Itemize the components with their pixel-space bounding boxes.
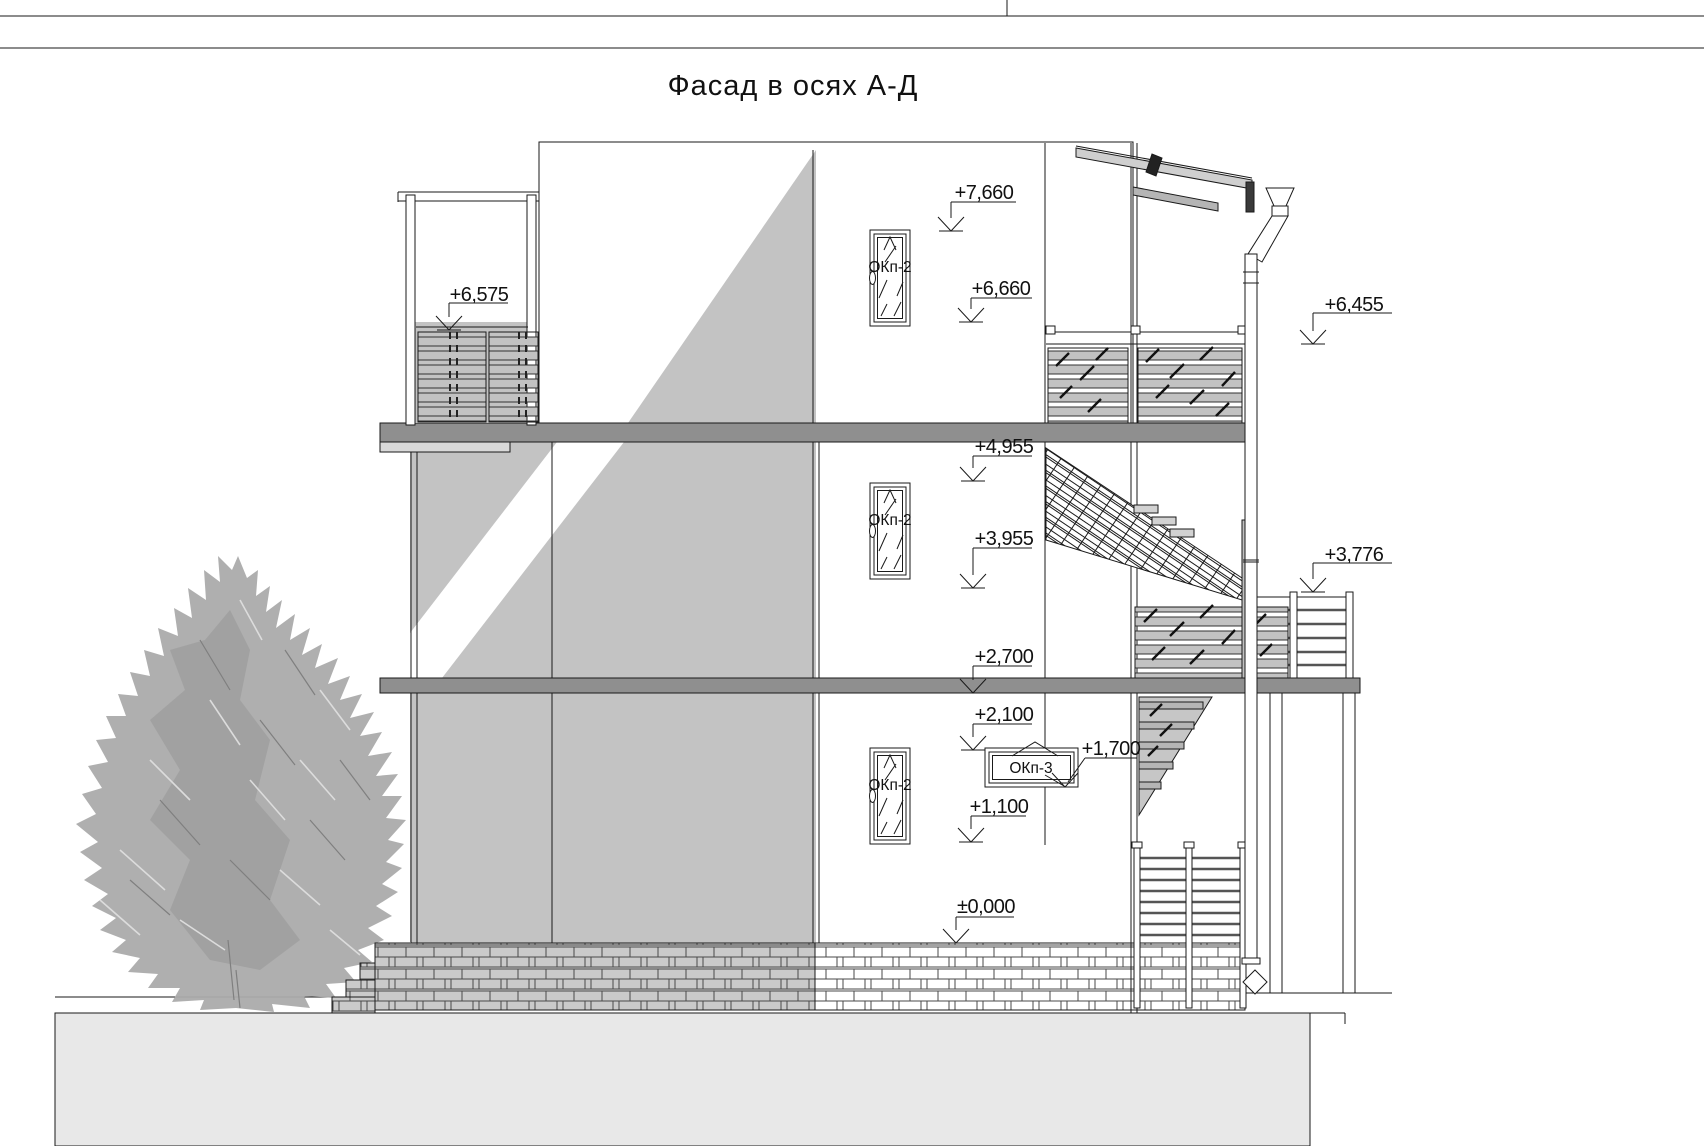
left-balcony (398, 192, 539, 425)
funnel-neck (1272, 206, 1288, 216)
brick-plinth-light (815, 943, 1245, 1010)
marker-arrow (1300, 330, 1326, 344)
entry-step-middle (346, 980, 375, 997)
ground (55, 993, 1392, 1146)
wall-floor3 (539, 142, 1133, 423)
elevation-label: +4,955 (975, 436, 1034, 458)
balcony-soffit (380, 442, 510, 452)
post-cap (1184, 842, 1194, 848)
elevation-label: +7,660 (955, 182, 1014, 204)
wall-floor1-shaded (410, 693, 816, 943)
marker-arrow (960, 574, 986, 588)
stair-step (1170, 529, 1194, 537)
marker-arrow (960, 467, 986, 481)
downspout (1242, 188, 1294, 994)
gutter-funnel (1266, 188, 1294, 206)
marker-leader (973, 548, 1032, 575)
elevation-marker-6455: +6,455 (1300, 294, 1392, 344)
tree (76, 556, 406, 1012)
entry-step-top (360, 963, 375, 980)
window-okp2-floor2 (868, 483, 911, 579)
window-okp2-floor3 (868, 230, 911, 326)
lower-post (1134, 848, 1140, 1008)
facade-elevation-drawing: ОКп-2 Фасад в осях А-Д (0, 0, 1704, 1146)
elevation-marker-3955: +3,955 (960, 528, 1034, 588)
lower-post (1186, 848, 1192, 1008)
brick-plinth-shaded (375, 943, 815, 1010)
marker-arrow (960, 736, 986, 750)
elevation-label: ±0,000 (957, 896, 1015, 918)
marker-leader (956, 917, 1014, 930)
elevation-label: +2,700 (975, 646, 1034, 668)
ground-strip (55, 1013, 1310, 1146)
roof-band-lower (1133, 187, 1218, 211)
support-post (1343, 693, 1355, 993)
window-okp3: ОКп-3 (985, 742, 1078, 787)
elevation-label: +2,100 (975, 704, 1034, 726)
stair-stringer-lower (1139, 697, 1212, 815)
slat-panel (1135, 607, 1242, 678)
slat-panel (1138, 348, 1242, 423)
support-post (1270, 693, 1282, 993)
entry-step-bottom (332, 997, 375, 1013)
downspout-outlet (1243, 970, 1267, 994)
drawing-sheet: ОКп-2 Фасад в осях А-Д (0, 0, 1704, 1146)
window-label-okp3: ОКп-3 (1009, 760, 1052, 777)
elevation-marker-0000: ±0,000 (943, 896, 1015, 943)
landing-post (1290, 592, 1297, 678)
stair-flight (1046, 448, 1242, 600)
balcony-top-rail (398, 192, 539, 202)
roof-fascia-end (1246, 182, 1254, 212)
slab-floor3 (380, 423, 1247, 442)
marker-arrow (943, 929, 969, 943)
stringer-tread (1139, 742, 1184, 749)
elevation-label: +3,955 (975, 528, 1034, 550)
stair-step (1134, 505, 1158, 513)
marker-arrow (958, 828, 984, 842)
elevation-marker-2100: +2,100 (960, 704, 1034, 750)
stair-flight-band (1046, 448, 1242, 600)
foundation (332, 943, 1245, 1013)
drawing-title: Фасад в осях А-Д (668, 70, 919, 102)
stair-step (1152, 517, 1176, 525)
post-cap (1046, 326, 1055, 334)
pipe-bracket (1242, 958, 1260, 964)
stringer-tread (1139, 702, 1203, 709)
elevation-label: +1,100 (970, 796, 1029, 818)
marker-arrow (1300, 578, 1326, 592)
elevation-label: +1,700 (1082, 738, 1141, 760)
post-cap (1132, 842, 1142, 848)
window-okp2-floor1 (868, 748, 911, 844)
post-cap (1131, 326, 1140, 334)
balcony-slat-panel-right (489, 332, 538, 422)
elevation-marker-1100: +1,100 (958, 796, 1029, 842)
elevation-marker-4955: +4,955 (960, 436, 1034, 481)
balcony-post-left (406, 195, 415, 425)
slab-floor2 (380, 678, 1360, 693)
elevation-marker-3776: +3,776 (1300, 544, 1392, 592)
downspout-pipe (1245, 254, 1257, 958)
stringer-tread (1139, 782, 1161, 789)
balcony-slat-panel-left (418, 332, 486, 422)
elevation-label: +6,660 (972, 278, 1031, 300)
landing-post (1346, 592, 1353, 678)
stringer-tread (1139, 762, 1173, 769)
